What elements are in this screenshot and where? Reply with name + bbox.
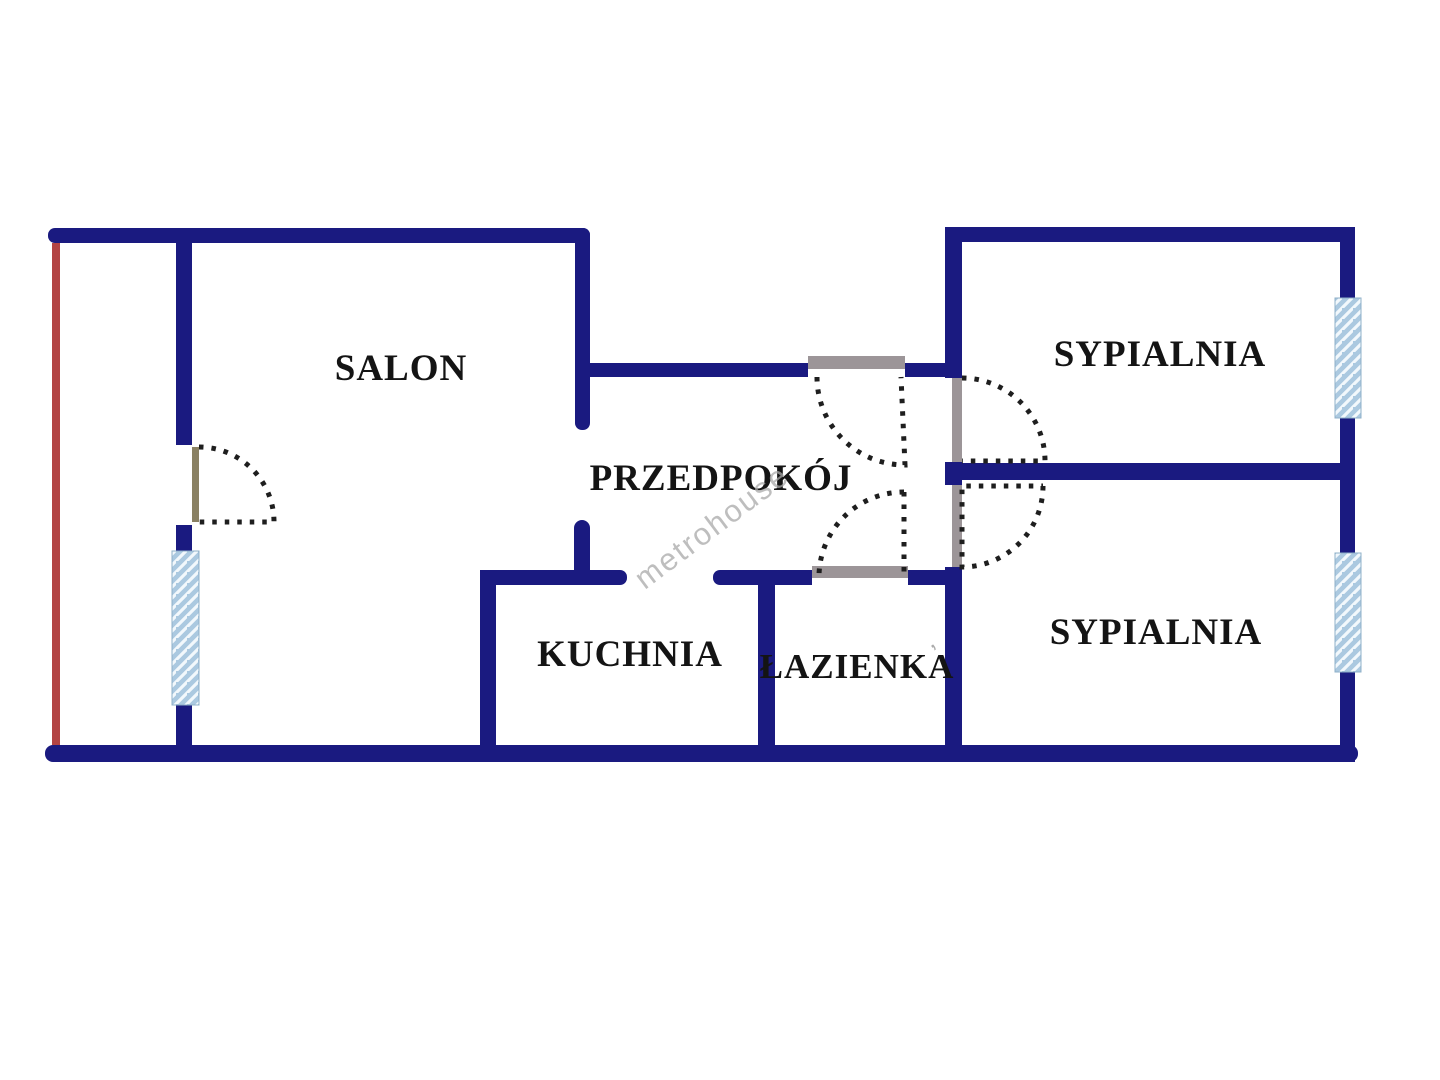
wall-salon-right-upper bbox=[575, 228, 590, 430]
wall-kitchen-left bbox=[480, 570, 496, 762]
wall-top-right bbox=[945, 227, 1355, 242]
room-label-kuchnia: KUCHNIA bbox=[537, 634, 723, 675]
bedroom-top-window bbox=[1335, 298, 1361, 418]
balcony-window bbox=[172, 551, 199, 705]
wall-between-bedrooms bbox=[962, 463, 1355, 480]
wall-left-lower bbox=[176, 703, 192, 762]
bedroom-top-door-jamb bbox=[952, 378, 962, 462]
bedroom-bottom-window bbox=[1335, 553, 1361, 672]
room-label-salon: SALON bbox=[335, 348, 467, 389]
wall-top-left bbox=[48, 228, 590, 243]
bathroom-door-jamb bbox=[812, 566, 908, 578]
wall-hall-top-left bbox=[583, 363, 808, 377]
floor-plan-svg: SALON PRZEDPOKÓJ KUCHNIA ŁAZIENKA SYPIAL… bbox=[0, 0, 1440, 1080]
wall-kitchen-top bbox=[480, 570, 627, 585]
balcony-door-leaf bbox=[192, 447, 199, 522]
wall-left-mid bbox=[176, 525, 192, 553]
room-label-sypialnia-top: SYPIALNIA bbox=[1054, 334, 1267, 375]
balcony-edge-line bbox=[52, 243, 60, 745]
room-label-przedpokoj: PRZEDPOKÓJ bbox=[590, 457, 853, 499]
wall-bathroom-top-left bbox=[775, 570, 812, 585]
floor-plan-canvas: SALON PRZEDPOKÓJ KUCHNIA ŁAZIENKA SYPIAL… bbox=[0, 0, 1440, 1080]
room-label-sypialnia-bottom: SYPIALNIA bbox=[1050, 612, 1263, 653]
entrance-door-jamb bbox=[808, 356, 905, 369]
wall-bathroom-top-right bbox=[908, 570, 962, 585]
wall-bottom bbox=[45, 745, 1358, 762]
wall-bedroom-separator-upper bbox=[945, 227, 962, 378]
wall-bedroom-separator-mid bbox=[945, 462, 962, 485]
wall-left-upper bbox=[176, 228, 192, 445]
room-label-lazienka: ŁAZIENKA bbox=[760, 647, 955, 686]
